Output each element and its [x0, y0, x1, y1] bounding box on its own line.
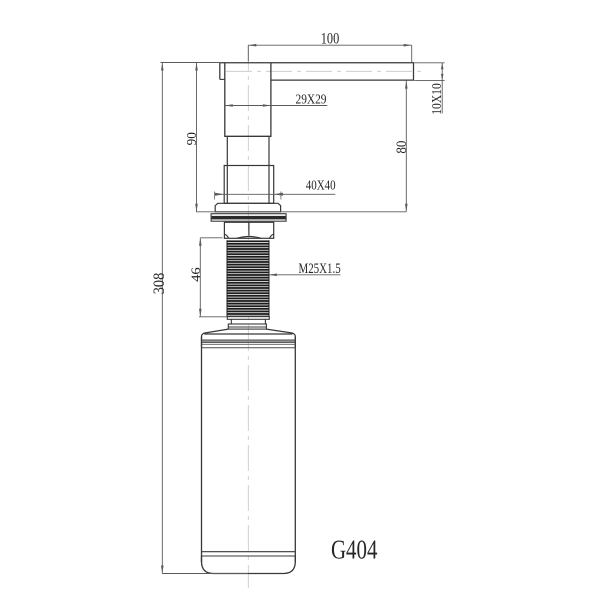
svg-text:40X40: 40X40 — [306, 177, 336, 192]
svg-text:308: 308 — [151, 273, 168, 295]
svg-text:80: 80 — [394, 141, 410, 154]
svg-text:M25X1.5: M25X1.5 — [299, 261, 341, 277]
svg-text:G404: G404 — [331, 534, 378, 565]
svg-text:10X10: 10X10 — [430, 83, 445, 115]
svg-text:100: 100 — [321, 31, 340, 48]
svg-text:90: 90 — [184, 132, 199, 145]
svg-text:29X29: 29X29 — [296, 92, 327, 107]
svg-text:46: 46 — [188, 267, 203, 282]
